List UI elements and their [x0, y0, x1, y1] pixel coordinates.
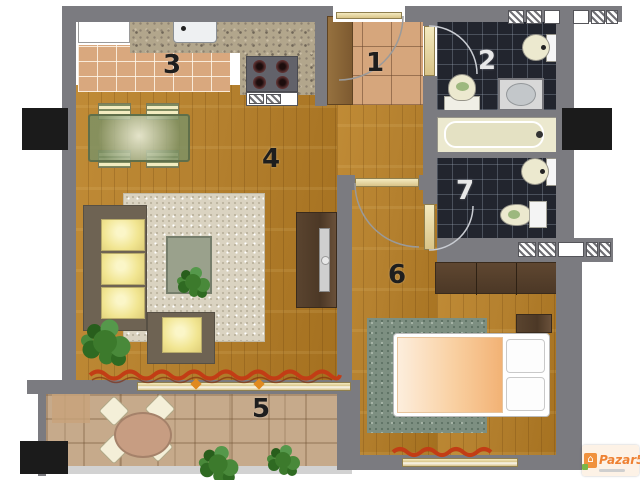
sofa-cushion [101, 253, 145, 285]
plant [93, 330, 117, 354]
bathtub-drain-icon [536, 131, 543, 138]
tub-wall [437, 152, 557, 158]
vent-icon [573, 10, 589, 24]
bedroom-right-wall [556, 254, 582, 470]
sink-faucet-icon [181, 26, 186, 31]
vent-icon [538, 242, 556, 257]
bed-blanket [397, 337, 503, 413]
wardrobe [435, 262, 557, 294]
terrace-floor [46, 392, 352, 468]
room-label-terrace: 5 [252, 396, 270, 422]
armchair-cushion [162, 317, 202, 353]
bed-pillow [506, 377, 545, 411]
plant [275, 452, 291, 468]
vent-icon [591, 10, 605, 24]
vent-icon [508, 10, 524, 24]
floor-plan: 1 2 3 4 5 6 7 ⌂ Pazar5.mk [0, 0, 640, 480]
room-label-living: 4 [262, 146, 280, 172]
vent-icon [586, 242, 598, 257]
room-label-bedroom: 6 [388, 262, 406, 288]
vent-icon [599, 242, 611, 257]
terrace-mat [52, 393, 90, 423]
bed-pillow [506, 339, 545, 373]
main-bath-door [424, 26, 435, 76]
burner-icon [276, 76, 289, 89]
bedroom-window [402, 458, 518, 467]
tv-stand [296, 212, 337, 308]
entry-door [336, 12, 402, 19]
house-icon: ⌂ [584, 453, 597, 468]
toilet-lid-icon [508, 210, 520, 219]
sink-tap-icon [541, 45, 546, 50]
dining-table [88, 114, 190, 162]
tub-wall [437, 110, 557, 117]
room-label-kitchen: 3 [163, 52, 181, 78]
kitchen-entry-wall [315, 16, 327, 106]
washing-machine-drum-icon [506, 83, 536, 106]
balcony-slab-edge [38, 466, 352, 474]
sofa-cushion [101, 219, 145, 251]
burner-icon [253, 76, 266, 89]
nightstand [516, 314, 552, 333]
terrace-table [114, 412, 172, 458]
ensuite-bath-door [424, 204, 435, 250]
sofa-cushion [101, 287, 145, 319]
vent-icon [558, 242, 584, 257]
watermark-tagline [599, 469, 625, 472]
toilet-tank [529, 201, 547, 228]
bedroom-north-wall [419, 175, 437, 190]
toilet-lid-icon [456, 82, 469, 91]
column-marker [22, 108, 68, 150]
watermark-brand: Pazar5 [599, 453, 640, 467]
plant [208, 454, 227, 473]
terrace-bedroom-wall [337, 380, 360, 470]
tv-knob-icon [321, 256, 330, 265]
burner-icon [253, 60, 266, 73]
bathtub-inner [444, 121, 544, 148]
room-label-ensuite: 7 [456, 178, 474, 204]
kitchen-base-cabinet [246, 92, 298, 106]
living-bedroom-wall [337, 175, 352, 385]
watermark-pazar5: ⌂ Pazar5.mk [582, 445, 639, 476]
vent-icon [544, 10, 560, 24]
vent-icon [526, 10, 542, 24]
room-label-main-bath: 2 [478, 48, 496, 74]
column-marker [562, 108, 612, 150]
plant [185, 274, 201, 290]
left-wall [62, 6, 76, 392]
burner-icon [276, 60, 289, 73]
terrace-sliding-window [137, 382, 351, 391]
sink-tap-icon [540, 169, 545, 174]
column-marker [20, 441, 68, 474]
hall-bath-wall [423, 18, 437, 26]
vent-icon [518, 242, 536, 257]
room-label-entry: 1 [366, 50, 384, 76]
bedroom-door [355, 178, 419, 187]
stove [246, 56, 298, 92]
vent-icon [606, 10, 618, 24]
entry-closet [327, 16, 353, 105]
